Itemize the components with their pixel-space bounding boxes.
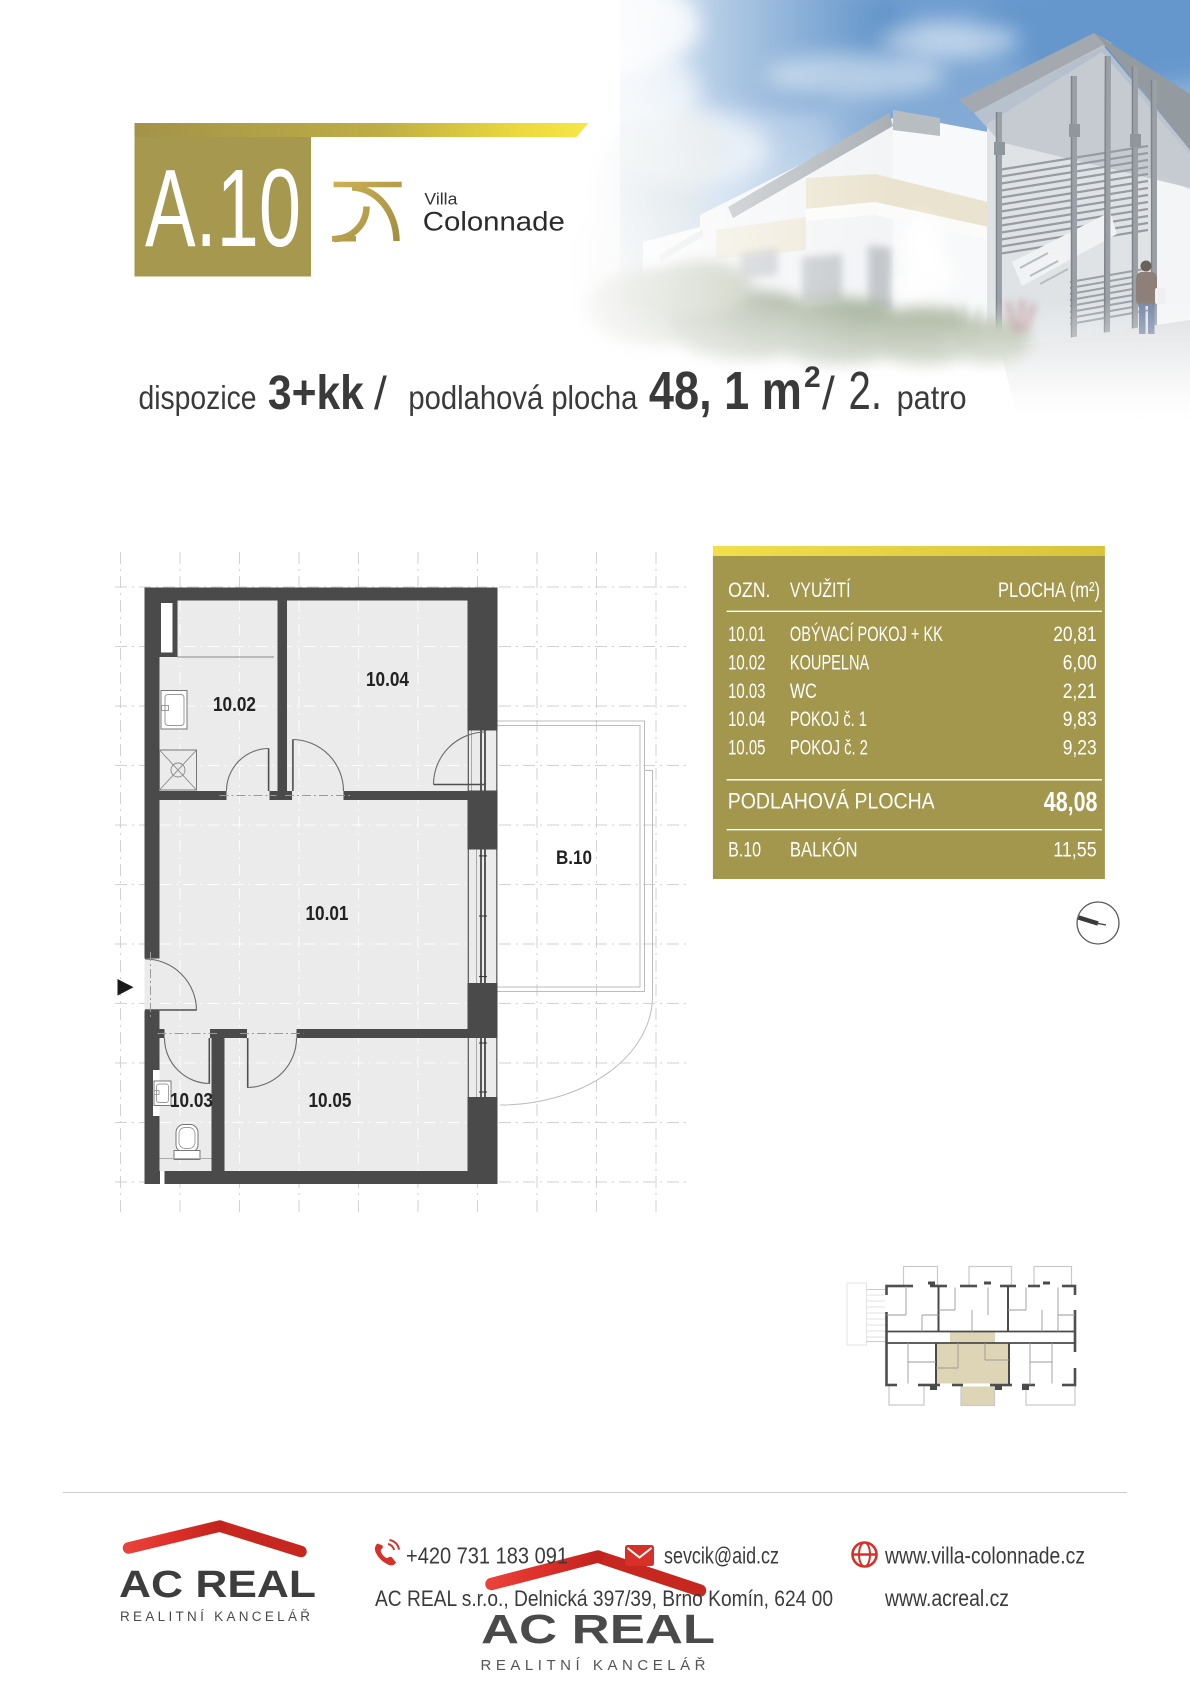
svg-text:3+kk: 3+kk [268, 367, 364, 420]
svg-text:AC REAL: AC REAL [119, 1564, 316, 1606]
svg-text:podlahová plocha: podlahová plocha [408, 379, 638, 416]
svg-text:A.10: A.10 [145, 147, 301, 270]
svg-text:10.01: 10.01 [306, 903, 349, 925]
svg-text:/: / [374, 367, 387, 419]
svg-text:48, 1 m: 48, 1 m [649, 361, 802, 421]
svg-text:11,55: 11,55 [1053, 838, 1097, 862]
svg-text:PODLAHOVÁ PLOCHA: PODLAHOVÁ PLOCHA [728, 789, 935, 814]
svg-text:POKOJ č. 1: POKOJ č. 1 [790, 707, 867, 731]
svg-text:REALITNÍ KANCELÁŘ: REALITNÍ KANCELÁŘ [120, 1609, 310, 1624]
svg-text:10.05: 10.05 [309, 1090, 352, 1112]
svg-text:10.04: 10.04 [366, 669, 410, 691]
svg-text:10.02: 10.02 [213, 694, 256, 716]
svg-text:POKOJ č. 2: POKOJ č. 2 [790, 736, 868, 760]
svg-text:www.villa-colonnade.cz: www.villa-colonnade.cz [884, 1543, 1085, 1569]
svg-text:2.: 2. [849, 361, 883, 421]
svg-text:www.acreal.cz: www.acreal.cz [884, 1585, 1009, 1611]
svg-text:10.04: 10.04 [728, 707, 765, 731]
svg-text:10.03: 10.03 [728, 679, 765, 703]
svg-text:10.01: 10.01 [728, 622, 765, 646]
svg-text:AC REAL: AC REAL [481, 1606, 715, 1652]
svg-text:+420 731 183 091: +420 731 183 091 [406, 1543, 568, 1569]
svg-text:9,23: 9,23 [1063, 736, 1097, 760]
svg-text:KOUPELNA: KOUPELNA [790, 650, 870, 674]
svg-text:dispozice: dispozice [139, 379, 257, 416]
svg-text:48,08: 48,08 [1044, 786, 1098, 817]
svg-text:/: / [822, 367, 835, 419]
svg-text:sevcik@aid.cz: sevcik@aid.cz [664, 1543, 779, 1569]
svg-text:2: 2 [804, 361, 821, 394]
svg-text:BALKÓN: BALKÓN [790, 837, 858, 862]
svg-text:6,00: 6,00 [1063, 650, 1097, 674]
svg-text:VYUŽITÍ: VYUŽITÍ [790, 577, 851, 602]
svg-text:2,21: 2,21 [1063, 679, 1097, 703]
svg-text:10.03: 10.03 [170, 1090, 213, 1112]
svg-text:B.10: B.10 [728, 838, 761, 862]
svg-text:B.10: B.10 [556, 848, 592, 869]
svg-text:Colonnade: Colonnade [423, 207, 565, 237]
svg-text:10.05: 10.05 [728, 736, 765, 760]
svg-text:10.02: 10.02 [728, 650, 765, 674]
svg-text:OBÝVACÍ POKOJ + KK: OBÝVACÍ POKOJ + KK [790, 621, 943, 646]
svg-text:WC: WC [790, 679, 817, 703]
svg-text:20,81: 20,81 [1053, 622, 1097, 646]
svg-text:9,83: 9,83 [1063, 707, 1097, 731]
svg-text:PLOCHA (m²): PLOCHA (m²) [998, 578, 1100, 602]
svg-text:patro: patro [897, 379, 967, 416]
svg-text:REALITNÍ KANCELÁŘ: REALITNÍ KANCELÁŘ [481, 1657, 706, 1674]
svg-text:OZN.: OZN. [728, 578, 770, 602]
